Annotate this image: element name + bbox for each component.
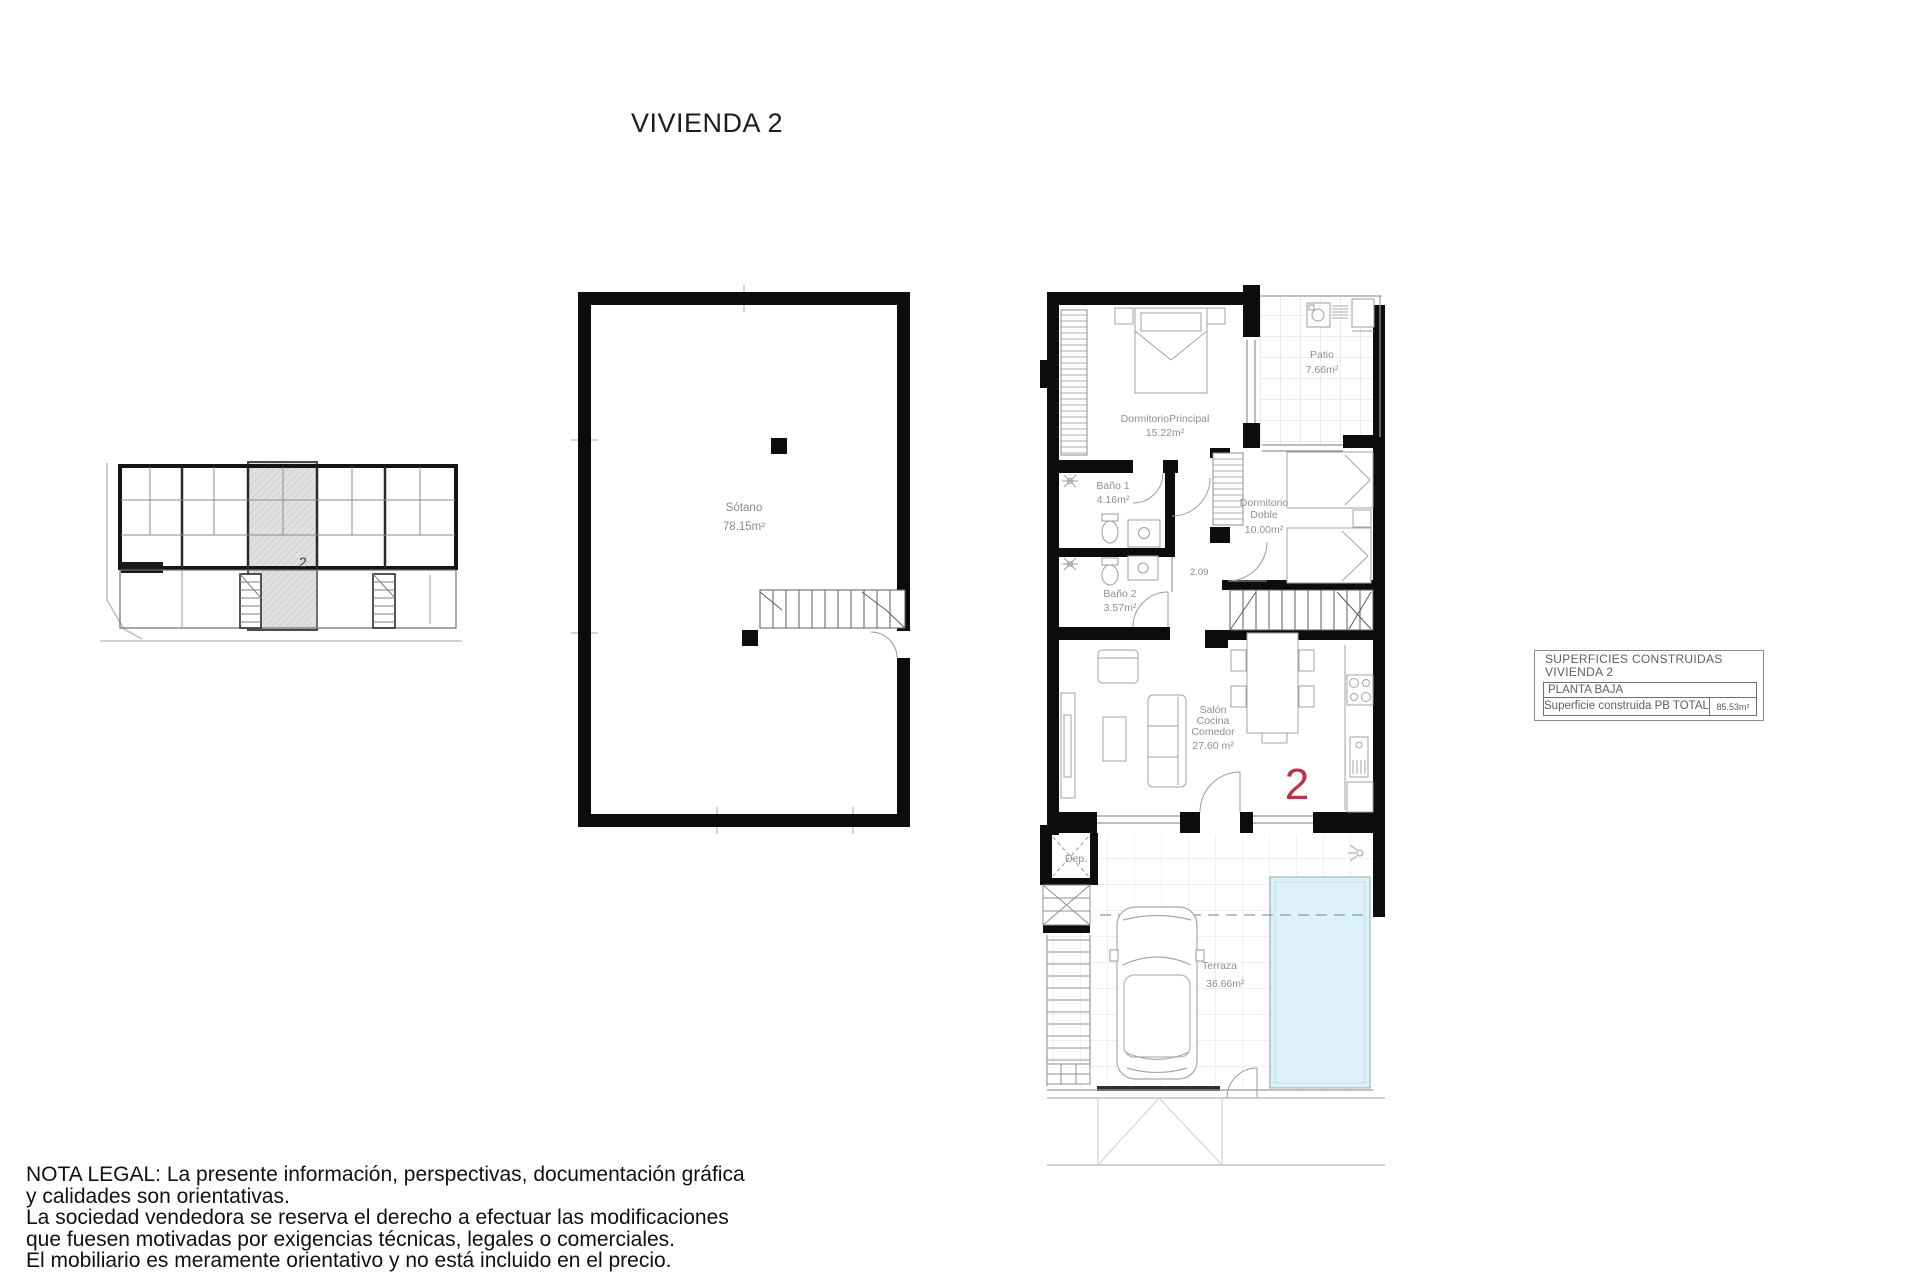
pillar-icon xyxy=(771,438,787,454)
car-icon xyxy=(1110,907,1204,1079)
chair-icon xyxy=(1299,686,1314,707)
room-area-salon: 27.60 m² xyxy=(1192,740,1234,752)
room-label-patio: Patio xyxy=(1310,349,1334,361)
unit-number-red: 2 xyxy=(1285,760,1309,809)
pool xyxy=(1270,877,1370,1088)
sink-icon xyxy=(1128,520,1160,547)
tv-icon xyxy=(1064,715,1071,777)
surfaces-legend: SUPERFICIES CONSTRUIDAS VIVIENDA 2 PLANT… xyxy=(1534,650,1764,721)
room-area-terraza: 36.66m² xyxy=(1206,978,1245,990)
legend-table: PLANTA BAJA Superficie construida PB TOT… xyxy=(1543,682,1757,716)
room-area-bano1: 4.16m² xyxy=(1097,494,1130,506)
basement-door-gap xyxy=(896,631,911,658)
bench-icon xyxy=(1262,733,1287,743)
basement-room-label: Sótano xyxy=(726,502,762,514)
sofa-icon xyxy=(1148,695,1186,787)
patio-counter xyxy=(1352,299,1374,327)
page-title: VIVIENDA 2 xyxy=(631,108,783,139)
legal-note-line: El mobiliario es meramente orientativo y… xyxy=(26,1250,745,1272)
room-label-dormitorio-doble-2: Doble xyxy=(1250,509,1278,521)
chair-icon xyxy=(1231,650,1246,671)
double-bed-icon xyxy=(1115,308,1225,393)
toilet-icon xyxy=(1102,558,1118,585)
legal-note-line: La sociedad vendedora se reserva el dere… xyxy=(26,1207,745,1229)
shower-icon xyxy=(1062,475,1078,487)
legend-row-planta-baja: PLANTA BAJA xyxy=(1544,683,1756,698)
key-plan: 2 xyxy=(95,455,475,655)
room-label-dep: Dep. xyxy=(1065,853,1087,865)
basement-walls xyxy=(578,292,910,827)
legal-note: NOTA LEGAL: La presente información, per… xyxy=(26,1164,745,1272)
legal-note-line: que fuesen motivadas por exigencias técn… xyxy=(26,1229,745,1251)
sink-icon xyxy=(1128,556,1158,580)
room-area-bano2: 3.57m² xyxy=(1104,602,1137,614)
bathroom2-fixtures xyxy=(1062,556,1158,585)
basement-stairs xyxy=(760,590,905,628)
basement-room-area: 78.15m² xyxy=(723,521,765,533)
ground-floor-plan: DormitorioPrincipal 15.22m² Patio 7.66m²… xyxy=(1030,280,1400,1185)
plot-boundary xyxy=(107,463,142,639)
legal-note-line: y calidades son orientativas. xyxy=(26,1186,745,1208)
coffee-table-icon xyxy=(1103,717,1126,761)
stove-icon xyxy=(1347,675,1373,705)
armchair-icon xyxy=(1098,650,1138,683)
main-stairs xyxy=(1230,590,1373,630)
chair-icon xyxy=(1299,650,1314,671)
room-label-terraza: Terraza xyxy=(1202,960,1237,972)
legend-row-total: Superficie construida PB TOTAL 85.53m² xyxy=(1544,698,1756,715)
room-area-dormitorio-principal: 15.22m² xyxy=(1146,427,1185,439)
chair-icon xyxy=(1231,686,1246,707)
basement-plan: Sótano 78.15m² xyxy=(560,278,940,843)
key-plan-unit-number: 2 xyxy=(299,554,307,570)
legend-total-label: Superficie construida PB TOTAL xyxy=(1544,698,1709,715)
room-area-patio: 7.66m² xyxy=(1306,364,1339,376)
centreline-ticks xyxy=(571,285,853,834)
legal-note-line: NOTA LEGAL: La presente información, per… xyxy=(26,1164,745,1186)
wardrobe-icon xyxy=(1061,310,1087,455)
washing-machine-icon xyxy=(1307,303,1330,327)
room-label-bano1: Baño 1 xyxy=(1096,480,1129,492)
pillar-icon xyxy=(742,630,758,646)
twin-beds-icon xyxy=(1287,452,1373,583)
room-label-bano2: Baño 2 xyxy=(1103,588,1136,600)
shower-icon xyxy=(1062,558,1078,570)
toilet-icon xyxy=(1102,514,1118,543)
legend-total-value: 85.53m² xyxy=(1709,698,1756,715)
entry-wall xyxy=(121,562,163,573)
stair-dimension: 2.09 xyxy=(1190,567,1209,578)
sink-unit-icon xyxy=(1350,737,1368,777)
driveway xyxy=(1047,1098,1385,1165)
legend-title-line2: VIVIENDA 2 xyxy=(1545,666,1763,679)
basement-door-arc xyxy=(871,632,897,658)
room-label-salon-3: Comedor xyxy=(1191,726,1235,738)
room-area-dormitorio-doble: 10.00m² xyxy=(1245,524,1284,536)
room-label-dormitorio-principal: DormitorioPrincipal xyxy=(1121,413,1210,425)
fridge-icon xyxy=(1347,782,1373,812)
closet-hatch xyxy=(1213,453,1243,525)
dining-table-icon xyxy=(1247,633,1298,733)
room-label-dormitorio-doble-1: Dormitorio xyxy=(1240,497,1289,509)
